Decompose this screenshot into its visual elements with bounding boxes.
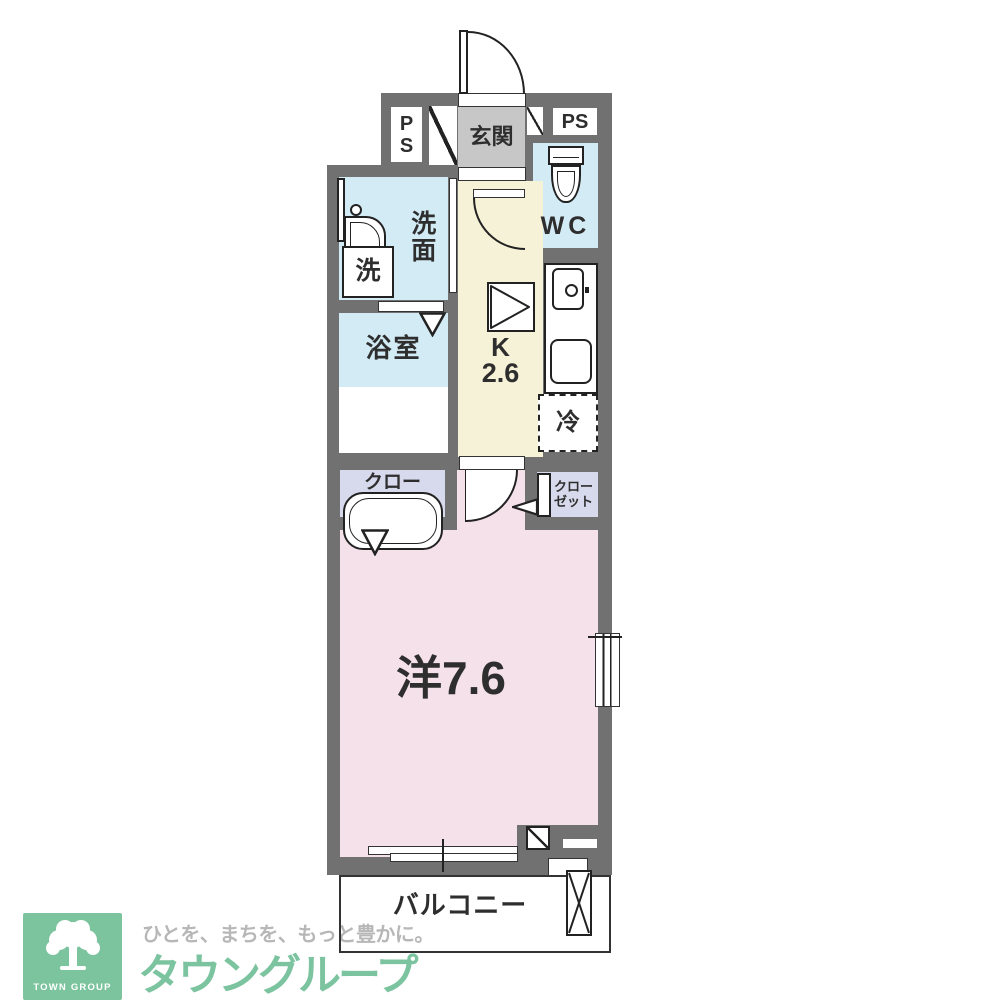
bathtub-icon xyxy=(343,492,443,550)
balcony-window-pane-2 xyxy=(390,853,518,862)
pipe-space-left: PS xyxy=(391,107,422,162)
logo-box-text: TOWN GROUP xyxy=(33,982,111,993)
wc-label: WC xyxy=(533,210,598,244)
kitchen-counter-open-shelf xyxy=(550,339,592,384)
bathroom-door xyxy=(378,301,444,312)
bathroom-door-swing-icon xyxy=(419,312,446,342)
refrigerator-space: 冷 xyxy=(538,394,598,452)
room-door-wedge-icon xyxy=(512,498,538,521)
closet-right-label-2: ゼット xyxy=(554,495,593,509)
balcony-label: バルコニー xyxy=(345,885,575,925)
washroom-sliding-door xyxy=(449,178,457,293)
kitchen-letter-label: K xyxy=(458,334,543,361)
washbasin-faucet-icon xyxy=(350,204,362,216)
kitchen-door-leaf xyxy=(473,189,525,198)
balcony-window-tick xyxy=(442,839,444,872)
closet-right-label-1: クロー xyxy=(554,480,593,494)
closet-right-door-leaf xyxy=(537,473,551,517)
kitchen-size-label: 2.6 xyxy=(458,360,543,387)
closet-left-label-1: クロー xyxy=(364,473,421,494)
pipe-space-right: PS xyxy=(553,108,597,135)
floorplan-image: TOWN GROUP ひとを、まちを、もっと豊かに。 タウングループ PS 玄関… xyxy=(0,0,1001,1000)
entrance-room: 玄関 xyxy=(458,107,525,167)
right-window-tick xyxy=(588,636,622,638)
bathtub-area xyxy=(339,387,448,453)
town-group-logo: TOWN GROUP xyxy=(23,913,122,1000)
town-group-tree-icon xyxy=(34,919,112,980)
washroom-label: 洗面 xyxy=(404,206,438,268)
kitchen-room-opening xyxy=(459,456,525,470)
western-room-label: 洋7.6 xyxy=(340,648,598,708)
washing-machine-box: 洗 xyxy=(342,246,394,298)
escape-hatch-icon xyxy=(566,870,592,936)
kitchen-unit-symbol xyxy=(487,282,535,332)
entrance-door-arc-icon xyxy=(468,31,525,94)
meter-box-right-icon xyxy=(527,107,543,135)
toilet-tank-icon xyxy=(548,146,584,165)
entrance-door-leaf xyxy=(459,30,468,94)
closet-left-door-swing-icon xyxy=(361,529,389,561)
meter-box-left-icon xyxy=(429,106,457,165)
shaft-hatch-icon xyxy=(526,826,550,850)
entrance-opening xyxy=(458,93,526,107)
kitchen-faucet-dot xyxy=(585,287,589,293)
vent-slot xyxy=(563,839,597,848)
kitchen-faucet-icon xyxy=(565,284,578,297)
right-wall-window xyxy=(595,633,620,707)
kitchen-entrance-opening xyxy=(458,167,526,181)
